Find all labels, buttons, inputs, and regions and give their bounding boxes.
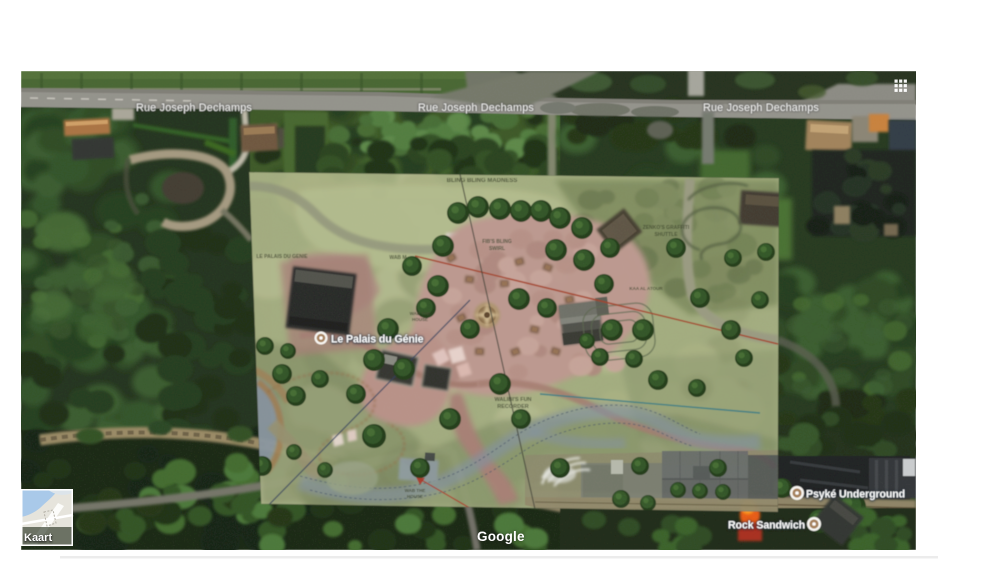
svg-text:Le Palais du Génie: Le Palais du Génie (331, 334, 424, 346)
svg-text:Psyké Underground: Psyké Underground (806, 489, 905, 501)
svg-text:Rue Joseph Dechamps: Rue Joseph Dechamps (418, 102, 534, 114)
svg-text:Rue Joseph Dechamps: Rue Joseph Dechamps (136, 102, 252, 114)
svg-text:Kaart: Kaart (24, 532, 52, 544)
svg-text:Rock Sandwich: Rock Sandwich (728, 520, 805, 532)
svg-text:Rue Joseph Dechamps: Rue Joseph Dechamps (703, 102, 819, 114)
svg-text:Google: Google (477, 529, 525, 544)
